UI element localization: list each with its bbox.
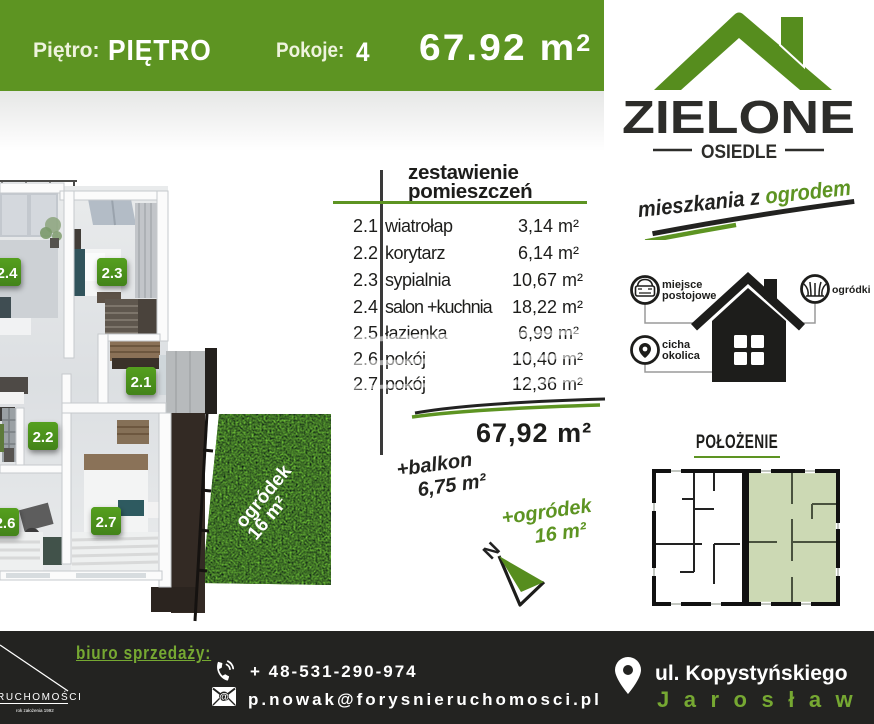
svg-text:2.2: 2.2	[33, 429, 54, 446]
svg-text:postojowe: postojowe	[662, 290, 716, 302]
svg-text:okolica: okolica	[662, 350, 701, 362]
svg-text:ZIELONE: ZIELONE	[622, 91, 855, 143]
svg-text:2.3: 2.3	[102, 265, 123, 282]
svg-text:2.6: 2.6	[0, 515, 15, 532]
svg-text:2.1: 2.1	[131, 374, 152, 391]
svg-text:2.4: 2.4	[0, 265, 18, 282]
svg-text:2.7: 2.7	[96, 514, 117, 531]
svg-text:RUCHOMOŚCI: RUCHOMOŚCI	[0, 690, 82, 703]
svg-text:mieszkania z ogrodem: mieszkania z ogrodem	[637, 175, 852, 222]
svg-text:@: @	[219, 692, 229, 703]
svg-text:ogródki: ogródki	[832, 284, 871, 296]
svg-text:rok założenia 1992: rok założenia 1992	[16, 708, 54, 713]
svg-text:OSIEDLE: OSIEDLE	[701, 142, 777, 163]
